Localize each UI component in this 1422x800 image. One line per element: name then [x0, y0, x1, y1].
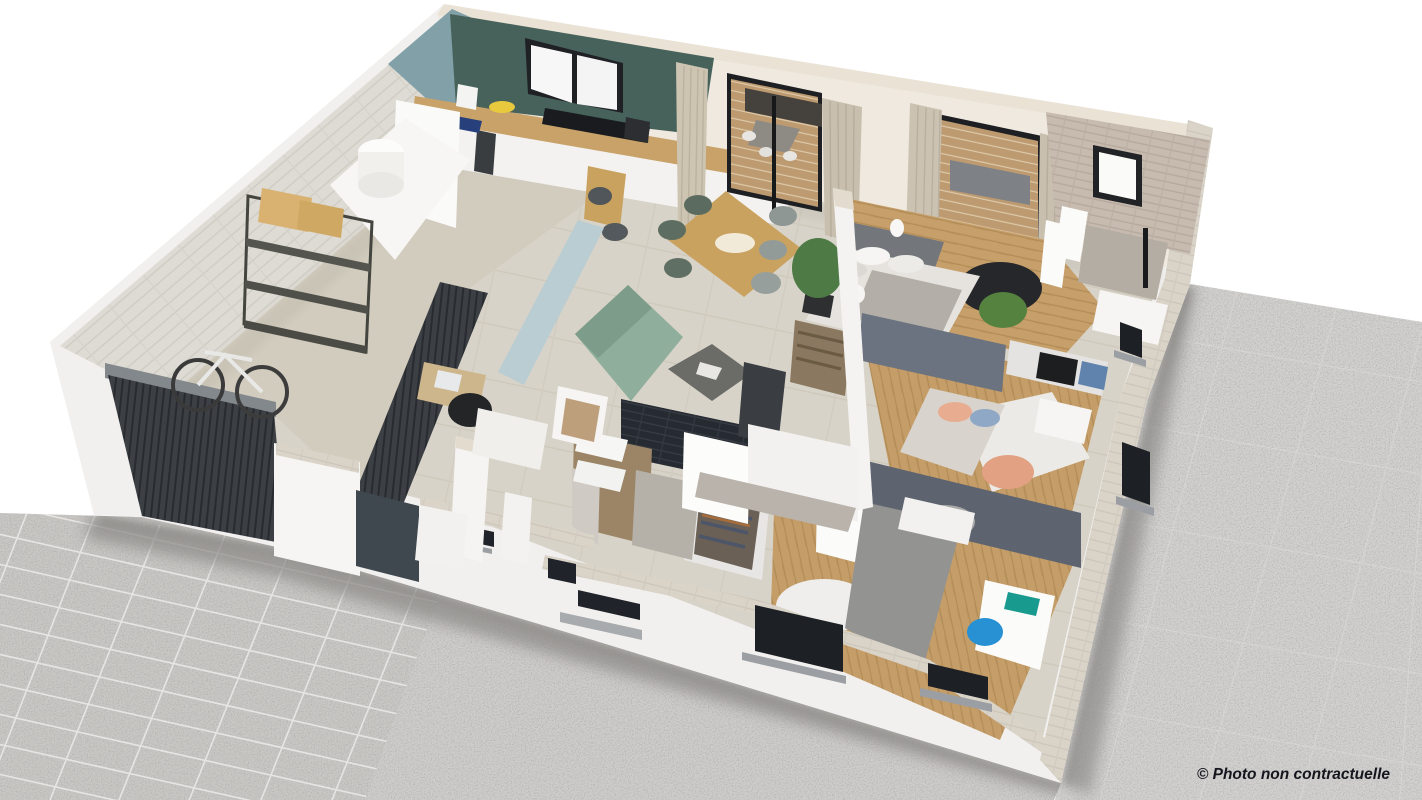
- svg-text:© Photo non contractuelle: © Photo non contractuelle: [1197, 766, 1391, 783]
